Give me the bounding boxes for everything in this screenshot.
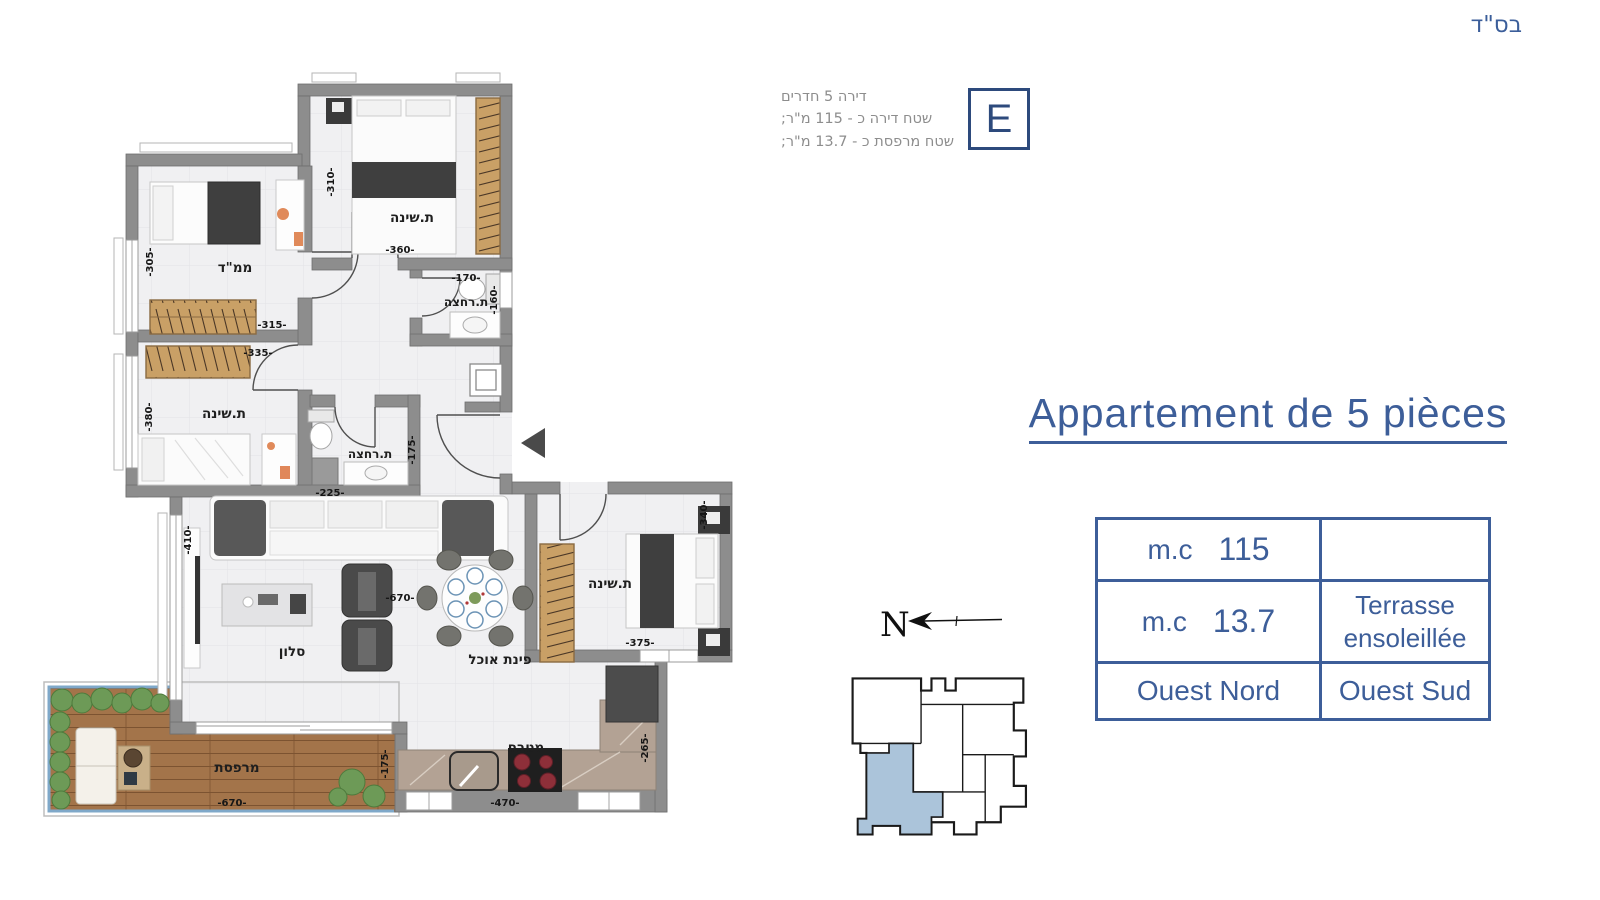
apartment-info-lines: דירה 5 חדרים שטח דירה כ - 115 מ"ר; שטח מ… bbox=[781, 86, 954, 153]
label-bedroom-top: ת.שינה bbox=[390, 210, 434, 226]
entrance-arrow bbox=[521, 428, 545, 458]
label-kitchen: מטבח bbox=[508, 740, 544, 756]
apartment-badge-letter: E bbox=[986, 97, 1013, 142]
compass-north-label: N bbox=[880, 605, 910, 645]
building-key-plan bbox=[824, 648, 1032, 844]
table-cell-area: m.c 115 bbox=[1098, 520, 1322, 582]
dim-bathroom-mid-bottom: -225- bbox=[315, 488, 344, 499]
dim-bedroom-right-bottom: -375- bbox=[625, 638, 654, 649]
dim-salon-width: -670- bbox=[385, 593, 414, 604]
dim-bathroom-mid-right: -175- bbox=[407, 435, 418, 464]
label-bedroom-left: ת.שינה bbox=[202, 406, 246, 422]
dim-kitchen-bottom: -470- bbox=[490, 798, 519, 809]
dim-bedroom-top-bottom: -360- bbox=[385, 245, 414, 256]
compass-arrow-line bbox=[924, 620, 1002, 622]
page: בס"ד דירה 5 חדרים שטח דירה כ - 115 מ"ר; … bbox=[0, 0, 1600, 900]
dim-mamad-left: -305- bbox=[145, 247, 156, 276]
dim-terrace-right: -175- bbox=[380, 749, 391, 778]
label-mamad: ממ"ד bbox=[218, 260, 253, 276]
label-bedroom-right: ת.שינה bbox=[588, 576, 632, 592]
table-cell-orientation-2: Ouest Sud bbox=[1322, 664, 1488, 718]
dim-terrace-bottom: -670- bbox=[217, 798, 246, 809]
dim-bedroom-top-left: -310- bbox=[326, 167, 337, 196]
details-table: m.c 115 m.c 13.7 Terrasse ensoleillée Ou… bbox=[1095, 517, 1491, 721]
apartment-badge: E bbox=[968, 88, 1030, 150]
table-cell-orientation-1: Ouest Nord bbox=[1098, 664, 1322, 718]
table-cell-terrace-label: Terrasse ensoleillée bbox=[1322, 582, 1488, 664]
dim-bedroom-right-right: -340- bbox=[699, 500, 710, 529]
dim-bathroom-top-right: -160- bbox=[489, 285, 500, 314]
table-cell-terrace-area: m.c 13.7 bbox=[1098, 582, 1322, 664]
compass: N bbox=[852, 596, 1017, 648]
label-bathroom-mid: ת.רחצה bbox=[348, 447, 392, 461]
dim-salon-left: -410- bbox=[183, 525, 194, 554]
entry-shaft bbox=[470, 364, 502, 396]
bsd-text: בס"ד bbox=[1471, 12, 1522, 38]
info-line-terrace: שטח מרפסת כ - 13.7 מ"ר; bbox=[781, 131, 954, 153]
table-cell-empty bbox=[1322, 520, 1488, 582]
dim-bathroom-top-top: -170- bbox=[451, 273, 480, 284]
floor-plan: ממ"ד ת.שינה ת.רחצה ת.שינה ת.רחצה סלון פי… bbox=[0, 0, 760, 870]
dim-bedroom-left-top: -335- bbox=[243, 348, 272, 359]
info-line-rooms: דירה 5 חדרים bbox=[781, 86, 954, 108]
page-title: Appartement de 5 pièces bbox=[1016, 390, 1520, 437]
label-dining: פינת אוכל bbox=[468, 652, 531, 668]
label-terrace: מרפסת bbox=[214, 760, 259, 776]
label-salon: סלון bbox=[279, 644, 306, 660]
compass-arrow-tick bbox=[956, 616, 957, 626]
info-line-area: שטח דירה כ - 115 מ"ר; bbox=[781, 108, 954, 130]
label-bathroom-top: ת.רחצה bbox=[444, 295, 488, 309]
dim-mamad-bottom: -315- bbox=[257, 320, 286, 331]
dim-kitchen-right: -265- bbox=[640, 733, 651, 762]
dim-bedroom-left-left: -380- bbox=[144, 402, 155, 431]
